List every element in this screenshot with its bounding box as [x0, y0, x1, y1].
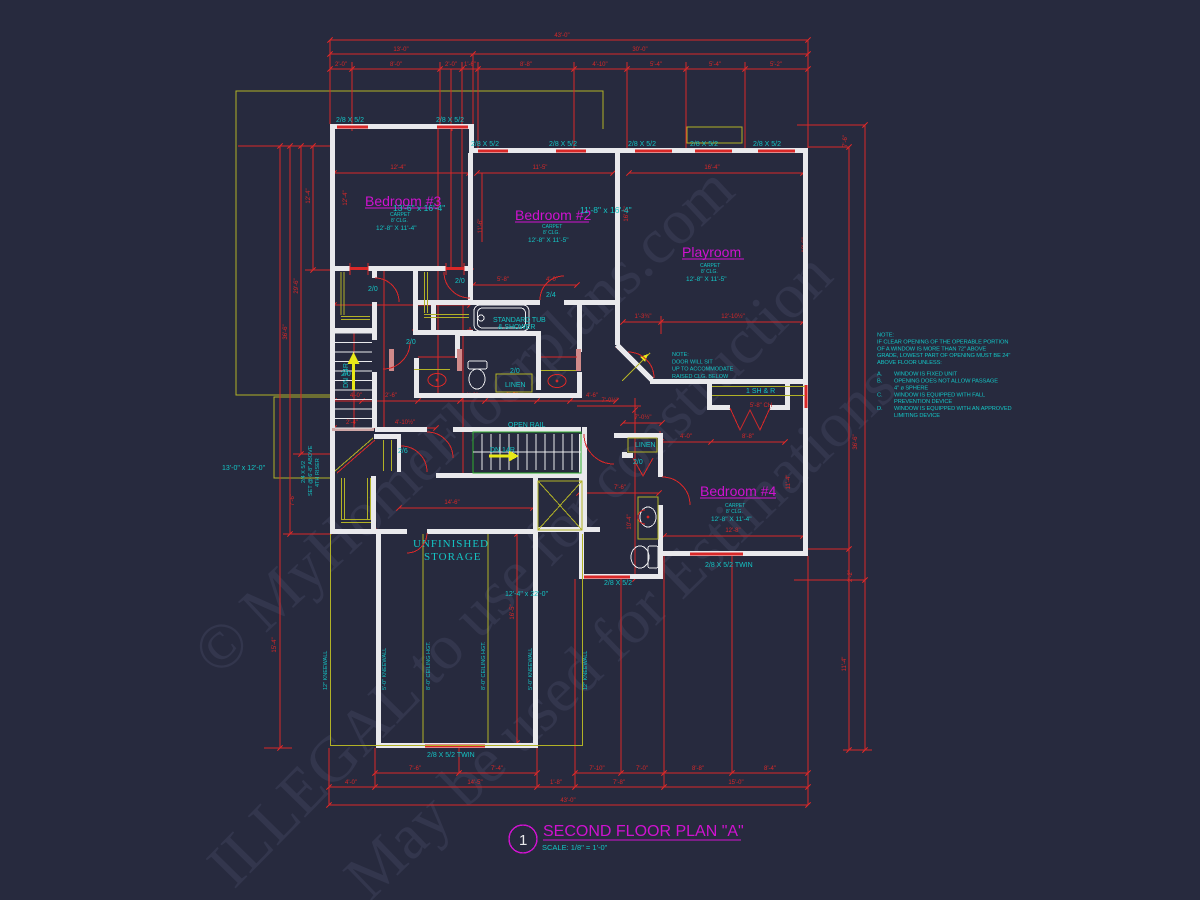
svg-text:10'-4": 10'-4" [627, 514, 633, 529]
svg-text:5'-8": 5'-8" [497, 277, 509, 283]
svg-text:& SHOWER: & SHOWER [498, 324, 535, 331]
svg-text:13'-0" x 12'-0": 13'-0" x 12'-0" [222, 465, 266, 472]
svg-text:B.: B. [877, 379, 883, 385]
svg-text:12'-10½": 12'-10½" [721, 313, 745, 320]
svg-text:8' CLG.: 8' CLG. [701, 269, 718, 275]
svg-text:12'-8": 12'-8" [725, 528, 740, 534]
svg-text:12'-4" x 22'-0": 12'-4" x 22'-0" [505, 591, 549, 598]
svg-text:12" KNEEWALL: 12" KNEEWALL [583, 651, 589, 690]
svg-text:8'-8": 8'-8" [742, 434, 754, 440]
svg-text:DN 14R: DN 14R [490, 447, 515, 454]
svg-text:2/8 X 5/2: 2/8 X 5/2 [549, 141, 577, 148]
svg-text:LIMITING DEVICE: LIMITING DEVICE [894, 413, 940, 419]
svg-text:2/4 X 5/2: 2/4 X 5/2 [301, 461, 307, 483]
svg-text:12'-4": 12'-4" [390, 165, 405, 171]
svg-text:2/8 X 5/2: 2/8 X 5/2 [436, 117, 464, 124]
svg-text:5'-0" KNEEWALL: 5'-0" KNEEWALL [382, 648, 388, 690]
svg-text:8' CLG.: 8' CLG. [391, 218, 408, 224]
svg-text:8' CLG.: 8' CLG. [543, 230, 560, 236]
svg-text:11'-4": 11'-4" [842, 657, 848, 672]
svg-text:NOTE:: NOTE: [672, 352, 689, 358]
svg-text:11'-4": 11'-4" [786, 475, 792, 490]
svg-text:11'-8" x 16'-4": 11'-8" x 16'-4" [580, 205, 632, 215]
svg-text:NOTE:: NOTE: [877, 333, 894, 339]
svg-text:12'-8" X 11'-4": 12'-8" X 11'-4" [711, 516, 752, 523]
svg-text:7'-6": 7'-6" [409, 766, 421, 772]
svg-text:4TH RISER: 4TH RISER [315, 458, 321, 487]
svg-text:8'-0" CEILING HGT.: 8'-0" CEILING HGT. [426, 641, 432, 690]
svg-text:2/4: 2/4 [546, 292, 556, 299]
svg-text:Bedroom #4: Bedroom #4 [700, 483, 776, 499]
svg-text:2/0: 2/0 [633, 459, 643, 466]
svg-text:WINDOW IS EQUIPPED WITH FALL: WINDOW IS EQUIPPED WITH FALL [894, 392, 985, 398]
svg-text:12'-4": 12'-4" [343, 190, 349, 205]
svg-text:IF CLEAR OPENING OF THE OPERAB: IF CLEAR OPENING OF THE OPERABLE PORTION [877, 339, 1008, 345]
svg-text:4'-0": 4'-0" [345, 780, 357, 786]
svg-text:30'-0": 30'-0" [632, 47, 647, 53]
svg-text:43'-0": 43'-0" [554, 33, 569, 39]
svg-text:5'-2": 5'-2" [770, 62, 782, 68]
svg-text:SET @ 6'-8" ABOVE: SET @ 6'-8" ABOVE [308, 445, 314, 496]
svg-text:RAISED CLG. BELOW: RAISED CLG. BELOW [672, 374, 729, 380]
svg-text:PREVENTION DEVICE: PREVENTION DEVICE [894, 399, 952, 405]
svg-text:2/8 X 5/2 TWIN: 2/8 X 5/2 TWIN [427, 752, 475, 759]
svg-text:2'-0": 2'-0" [445, 62, 457, 68]
svg-text:7'-4": 7'-4" [491, 766, 503, 772]
svg-text:14'-6": 14'-6" [444, 500, 459, 506]
svg-text:A.: A. [877, 372, 883, 378]
svg-text:15'-0": 15'-0" [728, 780, 743, 786]
svg-text:2/8 X 5/2 TWIN: 2/8 X 5/2 TWIN [705, 562, 753, 569]
svg-text:GRADE, LOWEST PART OF OPENING: GRADE, LOWEST PART OF OPENING MUST BE 24… [877, 353, 1010, 359]
svg-text:12'-8" X 11'-4": 12'-8" X 11'-4" [376, 225, 417, 232]
svg-text:12" KNEEWALL: 12" KNEEWALL [323, 651, 329, 690]
svg-text:2/0: 2/0 [406, 339, 416, 346]
svg-text:4'-6": 4'-6" [586, 393, 598, 399]
svg-text:OF A WINDOW IS MORE THAN 72" A: OF A WINDOW IS MORE THAN 72" ABOVE [877, 346, 986, 352]
svg-text:1'-8": 1'-8" [550, 780, 562, 786]
svg-text:DOOR WILL SIT: DOOR WILL SIT [672, 359, 713, 365]
svg-text:UP TO ACCOMMODATE: UP TO ACCOMMODATE [672, 367, 734, 373]
svg-text:13'-0": 13'-0" [393, 47, 408, 53]
svg-text:OPENING DOES NOT ALLOW PASSAGE: OPENING DOES NOT ALLOW PASSAGE [894, 379, 998, 385]
svg-text:2/8 X 5/2: 2/8 X 5/2 [628, 141, 656, 148]
svg-text:2/0: 2/0 [368, 286, 378, 293]
svg-text:12'-8" X 11'-5": 12'-8" X 11'-5" [528, 237, 569, 244]
svg-text:2/0: 2/0 [510, 368, 520, 375]
svg-text:29'-6": 29'-6" [294, 278, 300, 293]
svg-text:WINDOW IS EQUIPPED WITH AN APP: WINDOW IS EQUIPPED WITH AN APPROVED [894, 406, 1012, 412]
svg-text:1'-6": 1'-6" [464, 62, 476, 68]
svg-text:C.: C. [877, 392, 883, 398]
svg-text:2/0: 2/0 [455, 278, 465, 285]
svg-text:2'-4": 2'-4" [346, 420, 358, 426]
svg-text:11'-6": 11'-6" [478, 219, 484, 234]
svg-text:14'-5": 14'-5" [467, 780, 482, 786]
svg-text:7'-6": 7'-6" [290, 494, 296, 506]
svg-text:8'-4": 8'-4" [764, 766, 776, 772]
svg-text:2/0: 2/0 [341, 371, 351, 378]
svg-text:LINEN: LINEN [505, 382, 526, 389]
svg-text:36'-6": 36'-6" [853, 434, 859, 449]
svg-text:2'-0": 2'-0" [335, 62, 347, 68]
svg-text:7'-6": 7'-6" [614, 485, 626, 491]
svg-text:2/8 X 5/2: 2/8 X 5/2 [471, 141, 499, 148]
svg-text:2/8 X 5/2: 2/8 X 5/2 [690, 141, 718, 148]
svg-text:7'-0": 7'-0" [636, 766, 648, 772]
svg-text:2/8 X 5/2: 2/8 X 5/2 [604, 580, 632, 587]
svg-text:8' CLG.: 8' CLG. [726, 509, 743, 515]
svg-text:5'-4": 5'-4" [709, 62, 721, 68]
svg-text:4'-10½": 4'-10½" [395, 419, 415, 426]
svg-text:8'-0" CEILING HGT.: 8'-0" CEILING HGT. [481, 641, 487, 690]
svg-text:4'-10": 4'-10" [592, 62, 607, 68]
svg-text:4" ø SPHERE: 4" ø SPHERE [894, 385, 928, 391]
svg-text:7'-10": 7'-10" [589, 766, 604, 772]
svg-text:2/6: 2/6 [398, 448, 408, 455]
svg-text:WINDOW IS FIXED UNIT: WINDOW IS FIXED UNIT [894, 372, 958, 378]
svg-text:2'-6": 2'-6" [385, 393, 397, 399]
svg-text:16'-5": 16'-5" [510, 604, 516, 619]
svg-text:7'-0½": 7'-0½" [635, 414, 652, 421]
svg-text:12'-4": 12'-4" [306, 188, 312, 203]
svg-text:1: 1 [519, 832, 527, 849]
svg-text:SECOND FLOOR PLAN "A": SECOND FLOOR PLAN "A" [543, 823, 744, 840]
svg-text:UNFINISHED: UNFINISHED [413, 538, 489, 550]
svg-text:43'-0": 43'-0" [560, 798, 575, 804]
svg-text:OPEN RAIL: OPEN RAIL [508, 422, 545, 429]
svg-text:8'-8": 8'-8" [520, 62, 532, 68]
svg-text:SCALE: 1/8" = 1'-0": SCALE: 1/8" = 1'-0" [542, 843, 608, 852]
svg-text:12'-8" X 11'-5": 12'-8" X 11'-5" [686, 276, 727, 283]
svg-text:STORAGE: STORAGE [424, 551, 482, 563]
svg-text:ABOVE FLOOR UNLESS:: ABOVE FLOOR UNLESS: [877, 360, 942, 366]
svg-text:Playroom: Playroom [682, 244, 741, 260]
svg-text:7'-6": 7'-6" [843, 135, 849, 147]
svg-text:4'-0": 4'-0" [680, 434, 692, 440]
svg-text:11'-5": 11'-5" [533, 165, 548, 171]
svg-text:5'-8" CH: 5'-8" CH [750, 403, 772, 409]
svg-text:STANDARD TUB: STANDARD TUB [493, 317, 546, 324]
svg-text:8'-8": 8'-8" [692, 766, 704, 772]
svg-text:5'-4": 5'-4" [650, 62, 662, 68]
svg-text:LINEN: LINEN [635, 442, 656, 449]
svg-text:8'-0": 8'-0" [390, 62, 402, 68]
svg-text:2/8 X 5/2: 2/8 X 5/2 [336, 117, 364, 124]
svg-text:16'-4": 16'-4" [704, 165, 719, 171]
svg-text:36'-6": 36'-6" [283, 324, 289, 339]
svg-text:1 SH & R: 1 SH & R [746, 388, 775, 395]
svg-text:1'-3¾": 1'-3¾" [635, 314, 652, 320]
svg-text:2'-2": 2'-2" [848, 570, 854, 582]
svg-text:7'-8": 7'-8" [613, 780, 625, 786]
svg-text:5'-0" KNEEWALL: 5'-0" KNEEWALL [528, 648, 534, 690]
svg-text:4'-0": 4'-0" [350, 393, 362, 399]
svg-text:D.: D. [877, 406, 883, 412]
svg-text:15'-4": 15'-4" [272, 637, 278, 652]
svg-text:2/8 X 5/2: 2/8 X 5/2 [753, 141, 781, 148]
